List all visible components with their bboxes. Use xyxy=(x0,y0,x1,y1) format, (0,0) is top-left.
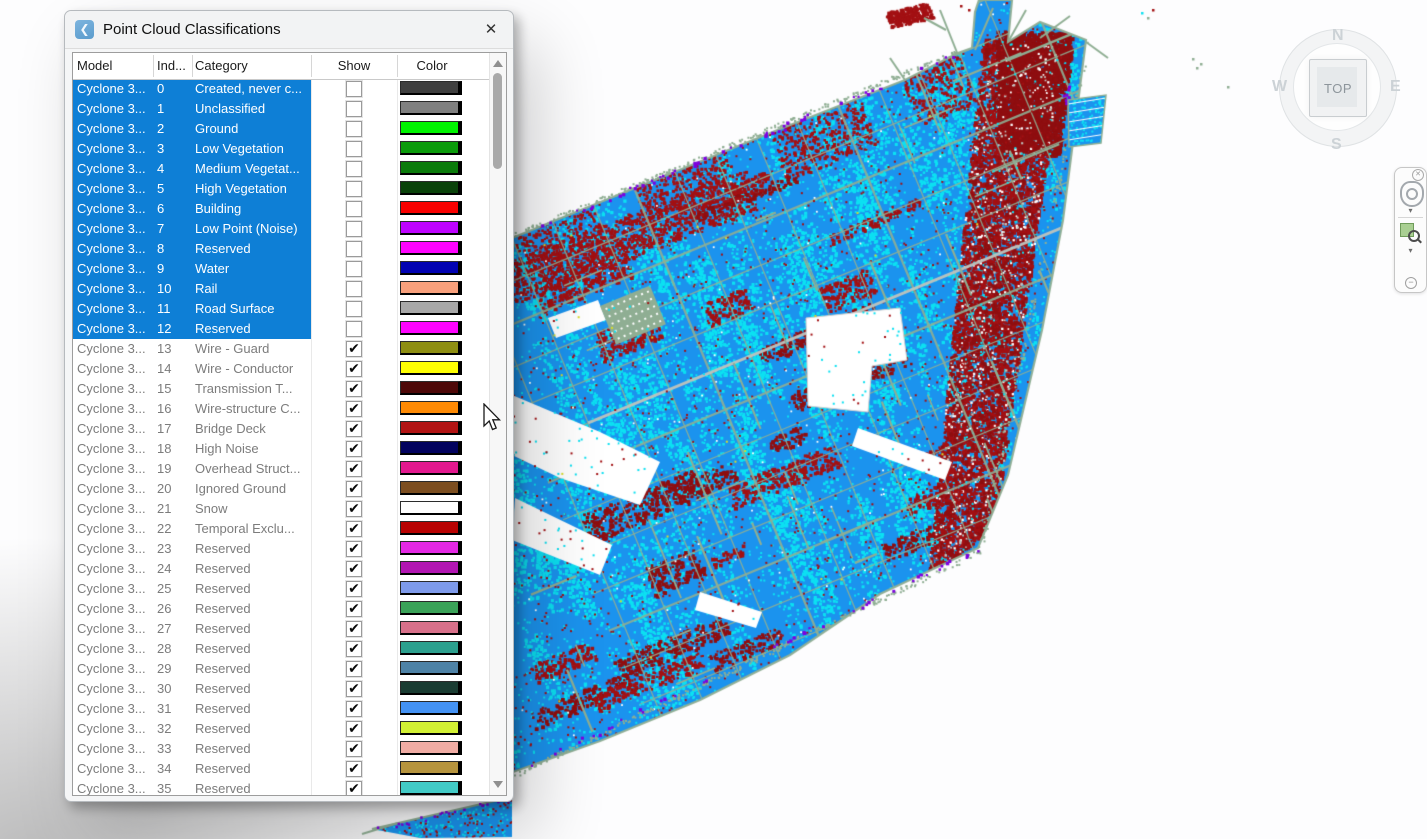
color-cell xyxy=(397,99,489,119)
index-cell: 28 xyxy=(157,639,191,659)
show-cell: ✔ xyxy=(311,459,397,479)
category-cell: High Noise xyxy=(195,439,311,459)
index-cell: 1 xyxy=(157,99,191,119)
show-checkbox[interactable] xyxy=(346,321,362,337)
table-row[interactable]: Cyclone 3...35Reserved✔ xyxy=(73,779,489,796)
color-cell xyxy=(397,319,489,339)
index-cell: 9 xyxy=(157,259,191,279)
category-cell: Reserved xyxy=(195,639,311,659)
show-checkbox[interactable]: ✔ xyxy=(346,681,362,697)
table-row[interactable]: Cyclone 3...9Water xyxy=(73,259,489,279)
show-checkbox[interactable]: ✔ xyxy=(346,581,362,597)
table-row[interactable]: Cyclone 3...3Low Vegetation xyxy=(73,139,489,159)
show-checkbox[interactable] xyxy=(346,281,362,297)
steering-wheel-icon[interactable] xyxy=(1400,181,1424,207)
category-cell: Medium Vegetat... xyxy=(195,159,311,179)
show-checkbox[interactable] xyxy=(346,261,362,277)
category-cell: Reserved xyxy=(195,759,311,779)
index-cell: 19 xyxy=(157,459,191,479)
category-cell: Reserved xyxy=(195,239,311,259)
scroll-down-icon[interactable] xyxy=(493,781,503,788)
show-checkbox[interactable]: ✔ xyxy=(346,521,362,537)
show-cell: ✔ xyxy=(311,779,397,796)
index-cell: 33 xyxy=(157,739,191,759)
color-cell xyxy=(397,359,489,379)
color-swatch[interactable] xyxy=(400,281,462,295)
color-cell xyxy=(397,519,489,539)
color-swatch[interactable] xyxy=(400,741,462,755)
model-cell: Cyclone 3... xyxy=(77,359,151,379)
scrollbar-thumb[interactable] xyxy=(493,73,502,169)
category-cell: Overhead Struct... xyxy=(195,459,311,479)
category-cell: Unclassified xyxy=(195,99,311,119)
point-cloud-classifications-dialog: ❮ Point Cloud Classifications ✕ Model In… xyxy=(64,10,514,802)
table-row[interactable]: Cyclone 3...4Medium Vegetat... xyxy=(73,159,489,179)
category-cell: Reserved xyxy=(195,699,311,719)
color-cell xyxy=(397,399,489,419)
color-swatch[interactable] xyxy=(400,81,462,95)
navbar-divider xyxy=(1398,217,1423,218)
model-cell: Cyclone 3... xyxy=(77,519,151,539)
model-cell: Cyclone 3... xyxy=(77,679,151,699)
table-row[interactable]: Cyclone 3...5High Vegetation xyxy=(73,179,489,199)
compass-south-label[interactable]: S xyxy=(1331,136,1342,154)
show-cell: ✔ xyxy=(311,379,397,399)
index-cell: 31 xyxy=(157,699,191,719)
category-cell: Ignored Ground xyxy=(195,479,311,499)
show-cell xyxy=(311,119,397,139)
show-cell: ✔ xyxy=(311,659,397,679)
model-cell: Cyclone 3... xyxy=(77,239,151,259)
magnifier-handle-icon xyxy=(1417,239,1422,244)
color-cell xyxy=(397,239,489,259)
show-checkbox[interactable]: ✔ xyxy=(346,541,362,557)
show-checkbox[interactable]: ✔ xyxy=(346,701,362,717)
show-checkbox[interactable] xyxy=(346,141,362,157)
color-swatch[interactable] xyxy=(400,441,462,455)
show-cell: ✔ xyxy=(311,399,397,419)
show-checkbox[interactable]: ✔ xyxy=(346,501,362,517)
show-cell: ✔ xyxy=(311,639,397,659)
show-checkbox[interactable] xyxy=(346,301,362,317)
category-cell: Reserved xyxy=(195,679,311,699)
model-cell: Cyclone 3... xyxy=(77,759,151,779)
show-checkbox[interactable]: ✔ xyxy=(346,721,362,737)
color-swatch[interactable] xyxy=(400,621,462,635)
zoom-menu-arrow-icon[interactable]: ▾ xyxy=(1395,247,1426,255)
show-checkbox[interactable] xyxy=(346,81,362,97)
model-cell: Cyclone 3... xyxy=(77,599,151,619)
category-cell: Building xyxy=(195,199,311,219)
scroll-up-icon[interactable] xyxy=(493,60,503,67)
wheel-menu-arrow-icon[interactable]: ▾ xyxy=(1395,207,1426,215)
model-cell: Cyclone 3... xyxy=(77,139,151,159)
color-swatch[interactable] xyxy=(400,201,462,215)
table-row[interactable]: Cyclone 3...32Reserved✔ xyxy=(73,719,489,739)
column-header-color[interactable]: Color xyxy=(397,53,467,78)
model-cell: Cyclone 3... xyxy=(77,199,151,219)
color-cell xyxy=(397,619,489,639)
show-checkbox[interactable]: ✔ xyxy=(346,461,362,477)
model-cell: Cyclone 3... xyxy=(77,479,151,499)
color-swatch[interactable] xyxy=(400,461,462,475)
index-cell: 14 xyxy=(157,359,191,379)
show-cell: ✔ xyxy=(311,479,397,499)
table-row[interactable]: Cyclone 3...28Reserved✔ xyxy=(73,639,489,659)
color-cell xyxy=(397,119,489,139)
show-cell: ✔ xyxy=(311,419,397,439)
mouse-cursor-icon xyxy=(482,403,504,433)
show-checkbox[interactable] xyxy=(346,241,362,257)
index-cell: 8 xyxy=(157,239,191,259)
column-header-category[interactable]: Category xyxy=(195,53,307,78)
category-cell: Wire - Conductor xyxy=(195,359,311,379)
index-cell: 3 xyxy=(157,139,191,159)
show-checkbox[interactable]: ✔ xyxy=(346,341,362,357)
color-swatch[interactable] xyxy=(400,701,462,715)
category-cell: Reserved xyxy=(195,619,311,639)
color-cell xyxy=(397,659,489,679)
compass-west-label[interactable]: W xyxy=(1272,78,1287,96)
column-header-index[interactable]: Ind... xyxy=(157,53,190,78)
color-swatch[interactable] xyxy=(400,141,462,155)
color-swatch[interactable] xyxy=(400,601,462,615)
color-cell xyxy=(397,779,489,796)
table-row[interactable]: Cyclone 3...2Ground xyxy=(73,119,489,139)
color-swatch[interactable] xyxy=(400,721,462,735)
model-cell: Cyclone 3... xyxy=(77,79,151,99)
navigation-bar: ✕ ▾ ▾ − xyxy=(1394,167,1427,293)
show-checkbox[interactable]: ✔ xyxy=(346,561,362,577)
show-checkbox[interactable]: ✔ xyxy=(346,361,362,377)
table-row[interactable]: Cyclone 3...20Ignored Ground✔ xyxy=(73,479,489,499)
table-row[interactable]: Cyclone 3...21Snow✔ xyxy=(73,499,489,519)
color-cell xyxy=(397,279,489,299)
category-cell: Reserved xyxy=(195,319,311,339)
table-row[interactable]: Cyclone 3...23Reserved✔ xyxy=(73,539,489,559)
table-row[interactable]: Cyclone 3...1Unclassified xyxy=(73,99,489,119)
index-cell: 25 xyxy=(157,579,191,599)
color-cell xyxy=(397,759,489,779)
header-separator xyxy=(153,55,154,77)
color-cell xyxy=(397,79,489,99)
table-row[interactable]: Cyclone 3...19Overhead Struct...✔ xyxy=(73,459,489,479)
color-swatch[interactable] xyxy=(400,761,462,775)
color-cell xyxy=(397,439,489,459)
category-cell: Reserved xyxy=(195,719,311,739)
color-swatch[interactable] xyxy=(400,341,462,355)
show-cell: ✔ xyxy=(311,499,397,519)
category-cell: Road Surface xyxy=(195,299,311,319)
table-row[interactable]: Cyclone 3...6Building xyxy=(73,199,489,219)
color-cell xyxy=(397,219,489,239)
table-row[interactable]: Cyclone 3...16Wire-structure C...✔ xyxy=(73,399,489,419)
category-cell: Low Vegetation xyxy=(195,139,311,159)
index-cell: 34 xyxy=(157,759,191,779)
category-cell: Wire - Guard xyxy=(195,339,311,359)
model-cell: Cyclone 3... xyxy=(77,419,151,439)
table-row[interactable]: Cyclone 3...27Reserved✔ xyxy=(73,619,489,639)
table-row[interactable]: Cyclone 3...29Reserved✔ xyxy=(73,659,489,679)
show-checkbox[interactable]: ✔ xyxy=(346,601,362,617)
show-checkbox[interactable]: ✔ xyxy=(346,421,362,437)
column-header-show[interactable]: Show xyxy=(311,53,397,78)
show-cell: ✔ xyxy=(311,679,397,699)
table-row[interactable]: Cyclone 3...10Rail xyxy=(73,279,489,299)
show-cell: ✔ xyxy=(311,339,397,359)
table-row[interactable]: Cyclone 3...33Reserved✔ xyxy=(73,739,489,759)
navbar-close-icon[interactable]: ✕ xyxy=(1412,169,1424,181)
show-cell xyxy=(311,159,397,179)
show-checkbox[interactable]: ✔ xyxy=(346,661,362,677)
table-row[interactable]: Cyclone 3...22Temporal Exclu...✔ xyxy=(73,519,489,539)
table-row[interactable]: Cyclone 3...12Reserved xyxy=(73,319,489,339)
show-cell: ✔ xyxy=(311,359,397,379)
show-cell: ✔ xyxy=(311,599,397,619)
category-cell: Wire-structure C... xyxy=(195,399,311,419)
index-cell: 17 xyxy=(157,419,191,439)
color-cell xyxy=(397,259,489,279)
model-cell: Cyclone 3... xyxy=(77,639,151,659)
index-cell: 7 xyxy=(157,219,191,239)
table-row[interactable]: Cyclone 3...8Reserved xyxy=(73,239,489,259)
show-checkbox[interactable]: ✔ xyxy=(346,781,362,796)
color-cell xyxy=(397,719,489,739)
table-row[interactable]: Cyclone 3...24Reserved✔ xyxy=(73,559,489,579)
show-cell xyxy=(311,319,397,339)
table-row[interactable]: Cyclone 3...13Wire - Guard✔ xyxy=(73,339,489,359)
color-swatch[interactable] xyxy=(400,321,462,335)
color-swatch[interactable] xyxy=(400,361,462,375)
model-cell: Cyclone 3... xyxy=(77,539,151,559)
color-cell xyxy=(397,639,489,659)
table-row[interactable]: Cyclone 3...26Reserved✔ xyxy=(73,599,489,619)
viewcube-face-label: TOP xyxy=(1310,60,1366,116)
model-cell: Cyclone 3... xyxy=(77,439,151,459)
category-cell: Transmission T... xyxy=(195,379,311,399)
dialog-title: Point Cloud Classifications xyxy=(103,11,281,48)
show-cell xyxy=(311,279,397,299)
color-swatch[interactable] xyxy=(400,501,462,515)
show-cell: ✔ xyxy=(311,579,397,599)
column-divider xyxy=(311,79,312,795)
color-swatch[interactable] xyxy=(400,121,462,135)
table-row[interactable]: Cyclone 3...30Reserved✔ xyxy=(73,679,489,699)
dialog-close-button[interactable]: ✕ xyxy=(481,11,501,48)
show-checkbox[interactable]: ✔ xyxy=(346,381,362,397)
header-separator xyxy=(192,55,193,77)
color-cell xyxy=(397,159,489,179)
show-checkbox[interactable] xyxy=(346,101,362,117)
color-swatch[interactable] xyxy=(400,221,462,235)
category-cell: Bridge Deck xyxy=(195,419,311,439)
category-cell: Temporal Exclu... xyxy=(195,519,311,539)
category-cell: Water xyxy=(195,259,311,279)
model-cell: Cyclone 3... xyxy=(77,719,151,739)
show-checkbox[interactable]: ✔ xyxy=(346,621,362,637)
table-row[interactable]: Cyclone 3...17Bridge Deck✔ xyxy=(73,419,489,439)
model-cell: Cyclone 3... xyxy=(77,399,151,419)
model-cell: Cyclone 3... xyxy=(77,779,151,796)
index-cell: 35 xyxy=(157,779,191,796)
model-cell: Cyclone 3... xyxy=(77,579,151,599)
model-cell: Cyclone 3... xyxy=(77,99,151,119)
color-swatch[interactable] xyxy=(400,681,462,695)
show-cell: ✔ xyxy=(311,519,397,539)
color-swatch[interactable] xyxy=(400,161,462,175)
color-swatch[interactable] xyxy=(400,241,462,255)
color-swatch[interactable] xyxy=(400,181,462,195)
show-cell xyxy=(311,219,397,239)
color-swatch[interactable] xyxy=(400,781,462,795)
category-cell: Reserved xyxy=(195,559,311,579)
model-cell: Cyclone 3... xyxy=(77,319,151,339)
color-swatch[interactable] xyxy=(400,581,462,595)
model-cell: Cyclone 3... xyxy=(77,179,151,199)
zoom-window-icon[interactable] xyxy=(1400,222,1421,243)
model-cell: Cyclone 3... xyxy=(77,739,151,759)
index-cell: 29 xyxy=(157,659,191,679)
column-header-model[interactable]: Model xyxy=(77,53,151,78)
app-back-icon: ❮ xyxy=(75,20,94,39)
index-cell: 5 xyxy=(157,179,191,199)
show-cell: ✔ xyxy=(311,719,397,739)
dialog-titlebar[interactable]: ❮ Point Cloud Classifications ✕ xyxy=(65,11,513,49)
compass-north-label[interactable]: N xyxy=(1332,27,1344,45)
show-checkbox[interactable]: ✔ xyxy=(346,401,362,417)
index-cell: 23 xyxy=(157,539,191,559)
index-cell: 11 xyxy=(157,299,191,319)
show-checkbox[interactable]: ✔ xyxy=(346,641,362,657)
index-cell: 26 xyxy=(157,599,191,619)
show-checkbox[interactable]: ✔ xyxy=(346,481,362,497)
category-cell: Reserved xyxy=(195,779,311,796)
show-cell xyxy=(311,259,397,279)
color-swatch[interactable] xyxy=(400,401,462,415)
color-cell xyxy=(397,179,489,199)
show-cell xyxy=(311,299,397,319)
color-cell xyxy=(397,479,489,499)
model-cell: Cyclone 3... xyxy=(77,279,151,299)
show-cell: ✔ xyxy=(311,699,397,719)
show-checkbox[interactable] xyxy=(346,221,362,237)
application-window: N W E S TOP ✕ ▾ ▾ − ❮ Point Cloud Classi… xyxy=(0,0,1427,839)
category-cell: Reserved xyxy=(195,659,311,679)
show-checkbox[interactable] xyxy=(346,161,362,177)
model-cell: Cyclone 3... xyxy=(77,339,151,359)
table-row[interactable]: Cyclone 3...31Reserved✔ xyxy=(73,699,489,719)
show-checkbox[interactable] xyxy=(346,181,362,197)
color-cell xyxy=(397,499,489,519)
index-cell: 16 xyxy=(157,399,191,419)
color-swatch[interactable] xyxy=(400,561,462,575)
category-cell: Low Point (Noise) xyxy=(195,219,311,239)
viewcube-top-face[interactable]: TOP xyxy=(1309,59,1367,117)
color-swatch[interactable] xyxy=(400,521,462,535)
color-swatch[interactable] xyxy=(400,641,462,655)
category-cell: High Vegetation xyxy=(195,179,311,199)
show-checkbox[interactable] xyxy=(346,121,362,137)
index-cell: 24 xyxy=(157,559,191,579)
color-cell xyxy=(397,339,489,359)
category-cell: Reserved xyxy=(195,579,311,599)
index-cell: 12 xyxy=(157,319,191,339)
model-cell: Cyclone 3... xyxy=(77,259,151,279)
category-cell: Rail xyxy=(195,279,311,299)
index-cell: 30 xyxy=(157,679,191,699)
model-cell: Cyclone 3... xyxy=(77,299,151,319)
index-cell: 4 xyxy=(157,159,191,179)
show-cell xyxy=(311,199,397,219)
classification-list: Model Ind... Category Show Color Cyclone… xyxy=(72,52,507,796)
show-cell: ✔ xyxy=(311,559,397,579)
color-cell xyxy=(397,699,489,719)
color-cell xyxy=(397,679,489,699)
index-cell: 6 xyxy=(157,199,191,219)
show-checkbox[interactable]: ✔ xyxy=(346,441,362,457)
category-cell: Reserved xyxy=(195,539,311,559)
show-cell xyxy=(311,179,397,199)
show-cell xyxy=(311,99,397,119)
show-checkbox[interactable]: ✔ xyxy=(346,741,362,757)
table-row[interactable]: Cyclone 3...14Wire - Conductor✔ xyxy=(73,359,489,379)
index-cell: 22 xyxy=(157,519,191,539)
table-row[interactable]: Cyclone 3...7Low Point (Noise) xyxy=(73,219,489,239)
color-swatch[interactable] xyxy=(400,301,462,315)
show-cell xyxy=(311,79,397,99)
navbar-collapse-icon[interactable]: − xyxy=(1405,277,1417,289)
color-cell xyxy=(397,199,489,219)
model-cell: Cyclone 3... xyxy=(77,619,151,639)
color-swatch[interactable] xyxy=(400,481,462,495)
index-cell: 20 xyxy=(157,479,191,499)
color-swatch[interactable] xyxy=(400,261,462,275)
table-row[interactable]: Cyclone 3...11Road Surface xyxy=(73,299,489,319)
color-swatch[interactable] xyxy=(400,101,462,115)
color-cell xyxy=(397,379,489,399)
color-swatch[interactable] xyxy=(400,541,462,555)
steering-wheel-hub-icon xyxy=(1406,188,1418,200)
model-cell: Cyclone 3... xyxy=(77,219,151,239)
show-cell xyxy=(311,239,397,259)
color-cell xyxy=(397,739,489,759)
model-cell: Cyclone 3... xyxy=(77,459,151,479)
table-row[interactable]: Cyclone 3...25Reserved✔ xyxy=(73,579,489,599)
index-cell: 10 xyxy=(157,279,191,299)
color-swatch[interactable] xyxy=(400,381,462,395)
column-divider xyxy=(397,79,398,795)
compass-east-label[interactable]: E xyxy=(1390,78,1401,96)
color-cell xyxy=(397,299,489,319)
table-row[interactable]: Cyclone 3...34Reserved✔ xyxy=(73,759,489,779)
model-cell: Cyclone 3... xyxy=(77,379,151,399)
color-cell xyxy=(397,579,489,599)
color-swatch[interactable] xyxy=(400,661,462,675)
color-swatch[interactable] xyxy=(400,421,462,435)
color-cell xyxy=(397,559,489,579)
color-cell xyxy=(397,599,489,619)
index-cell: 13 xyxy=(157,339,191,359)
show-checkbox[interactable] xyxy=(346,201,362,217)
show-cell: ✔ xyxy=(311,439,397,459)
table-row[interactable]: Cyclone 3...0Created, never c... xyxy=(73,79,489,99)
table-row[interactable]: Cyclone 3...15Transmission T...✔ xyxy=(73,379,489,399)
show-checkbox[interactable]: ✔ xyxy=(346,761,362,777)
index-cell: 21 xyxy=(157,499,191,519)
show-cell: ✔ xyxy=(311,539,397,559)
table-row[interactable]: Cyclone 3...18High Noise✔ xyxy=(73,439,489,459)
show-cell: ✔ xyxy=(311,759,397,779)
